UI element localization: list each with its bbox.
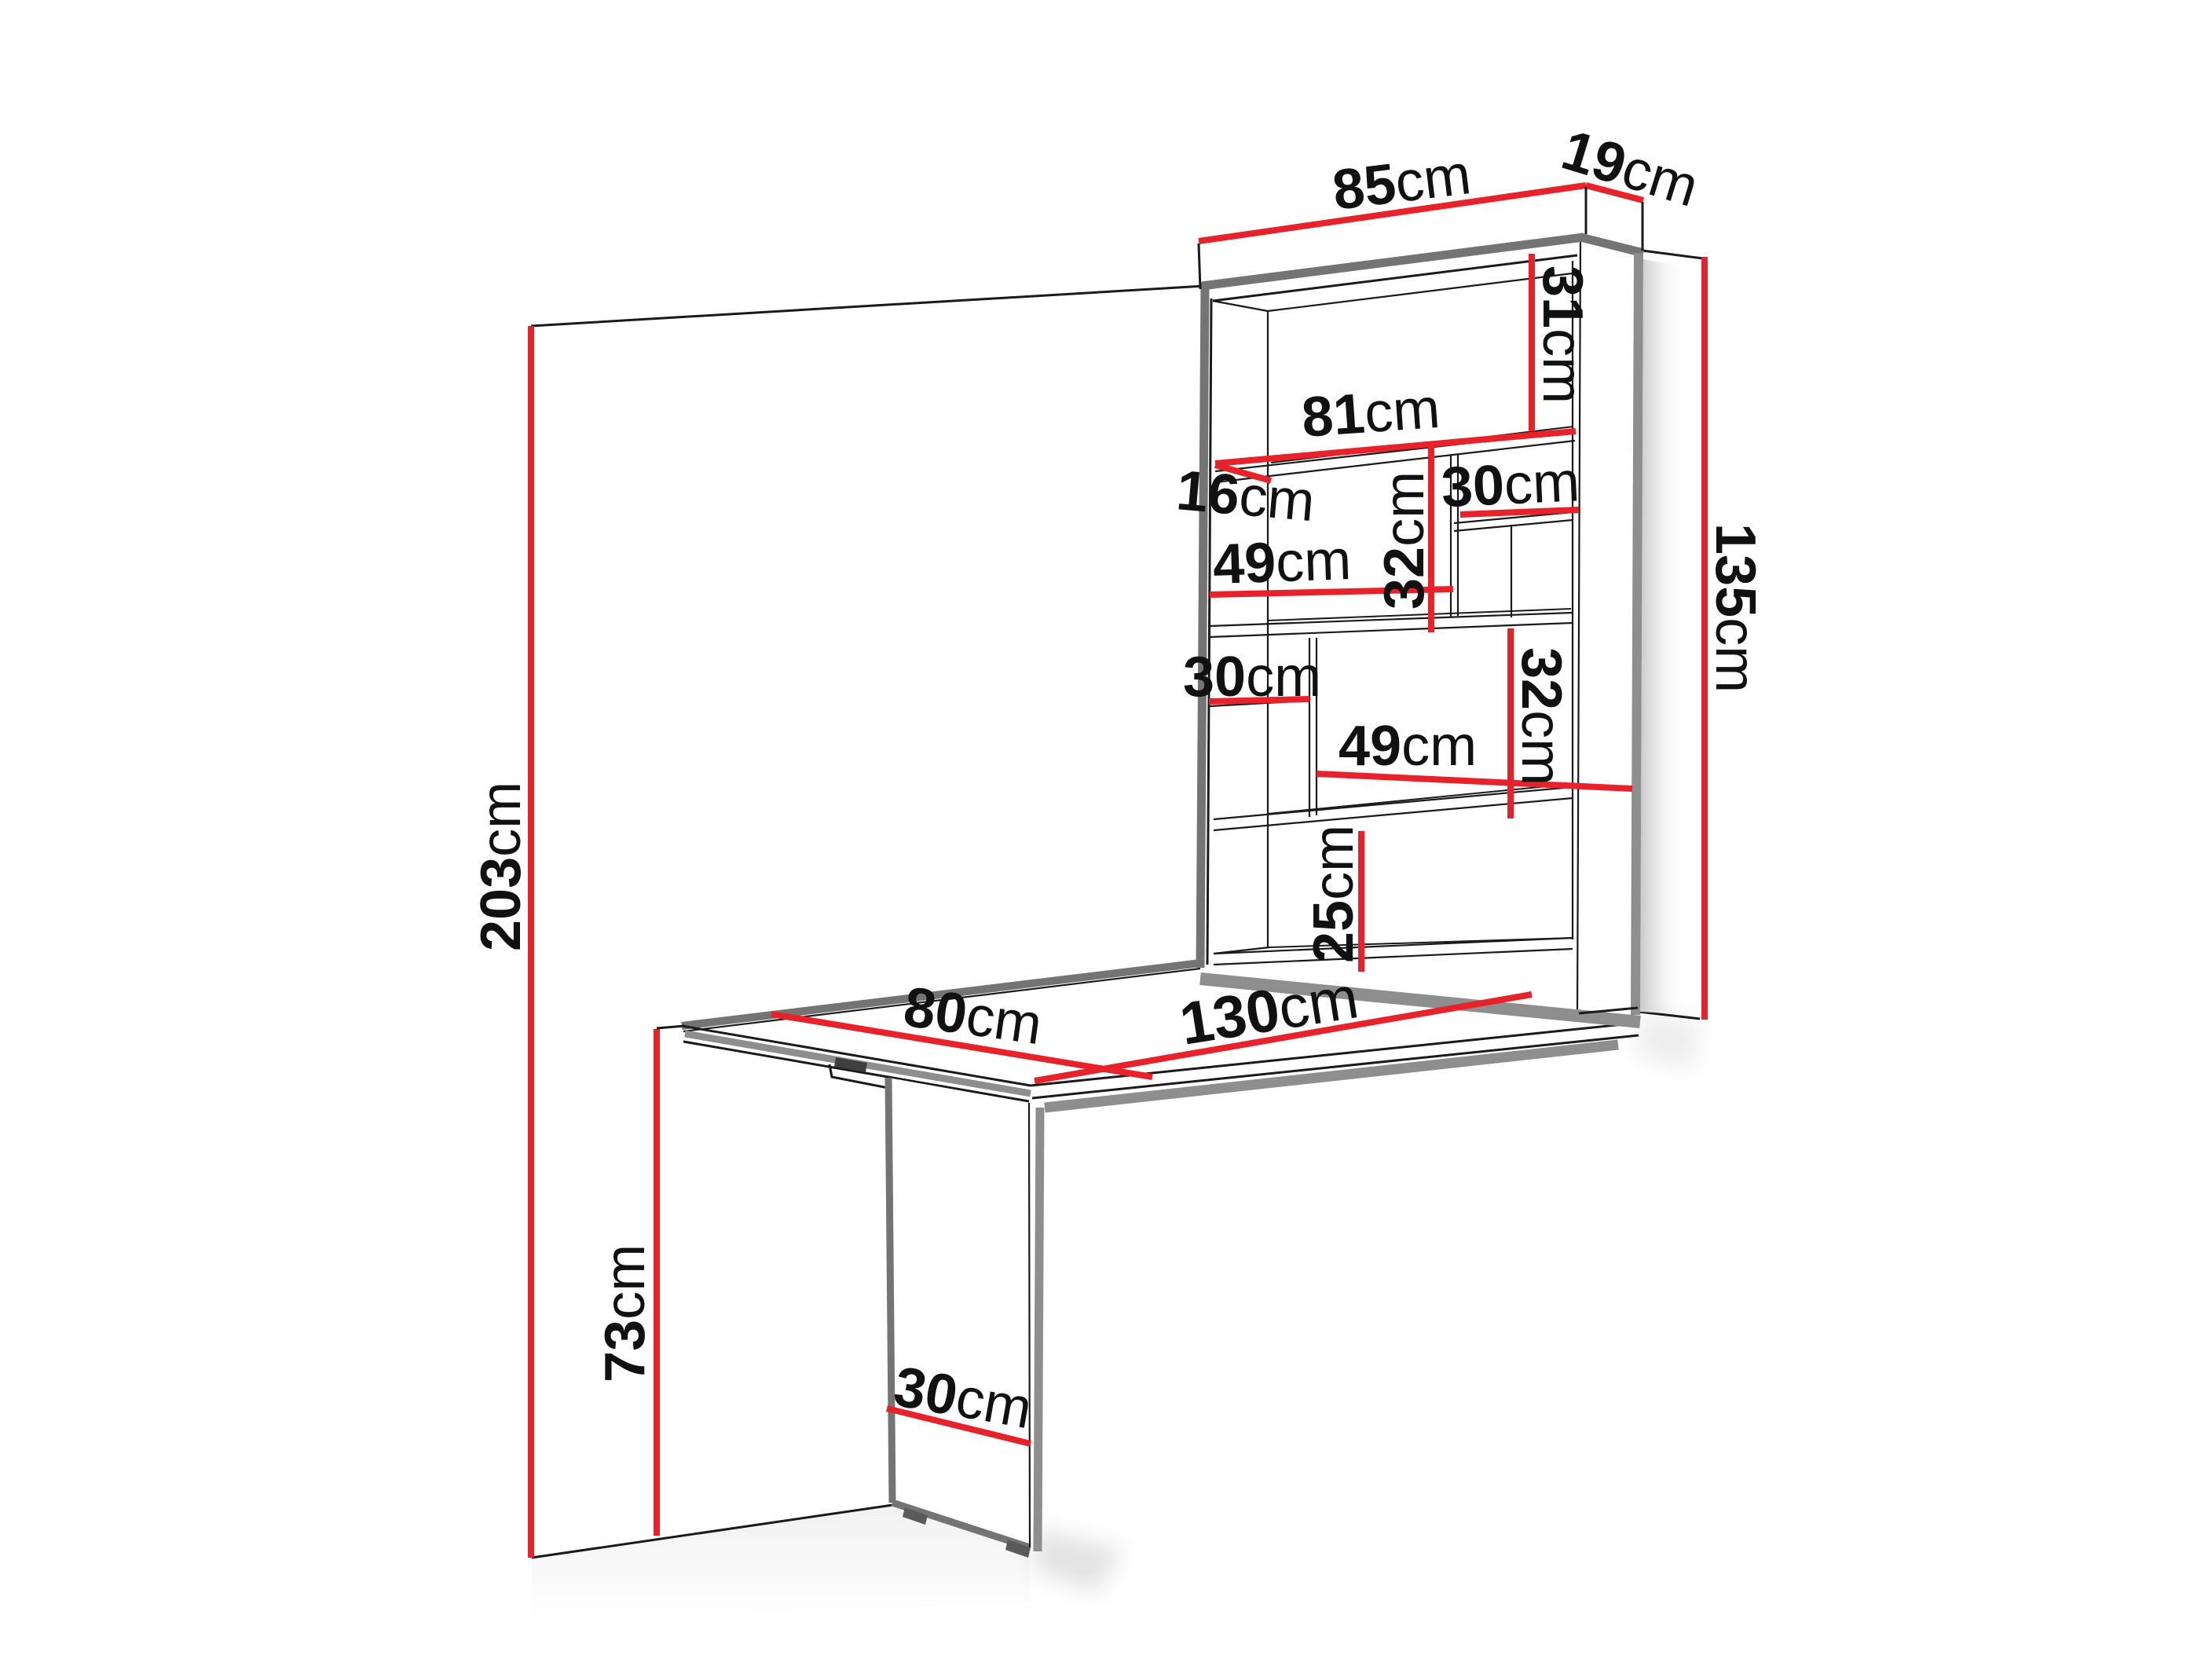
svg-text:49cm: 49cm bbox=[1212, 529, 1353, 596]
svg-text:30cm: 30cm bbox=[1440, 450, 1580, 519]
svg-text:16cm: 16cm bbox=[1174, 459, 1317, 533]
svg-text:73cm: 73cm bbox=[594, 1244, 657, 1382]
svg-text:49cm: 49cm bbox=[1339, 715, 1477, 778]
svg-text:81cm: 81cm bbox=[1300, 377, 1442, 449]
svg-text:31cm: 31cm bbox=[1531, 266, 1594, 404]
svg-text:32cm: 32cm bbox=[1510, 647, 1573, 786]
svg-text:203cm: 203cm bbox=[470, 782, 533, 951]
svg-text:25cm: 25cm bbox=[1302, 825, 1365, 963]
svg-text:135cm: 135cm bbox=[1704, 523, 1767, 693]
svg-text:30cm: 30cm bbox=[1183, 646, 1321, 709]
svg-text:32cm: 32cm bbox=[1373, 471, 1436, 610]
